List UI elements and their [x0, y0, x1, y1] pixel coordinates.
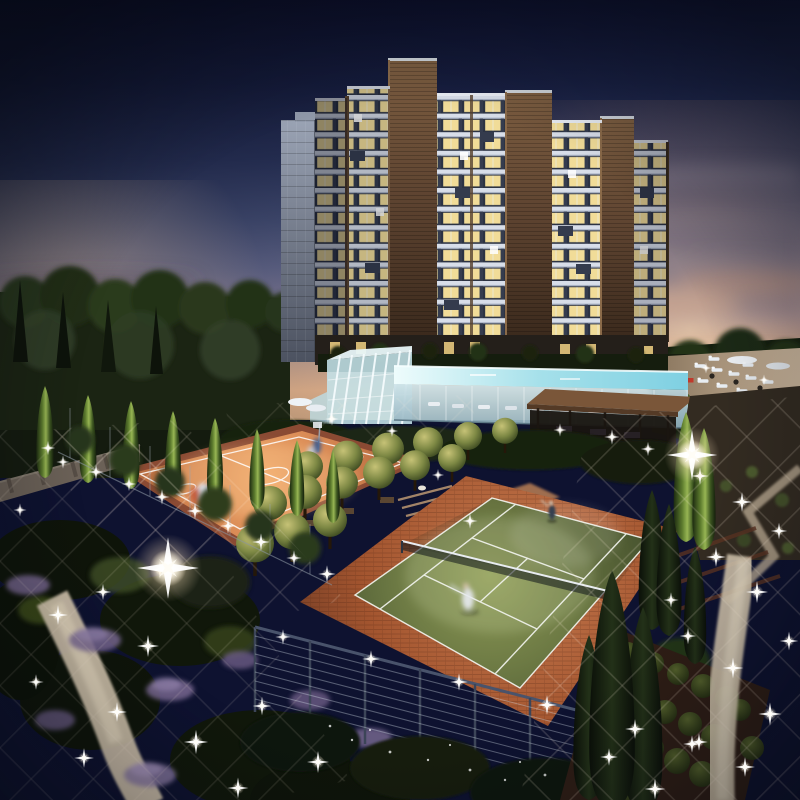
rt-instance — [326, 467, 358, 510]
basketball-court — [120, 422, 425, 546]
orchard-zone — [236, 418, 560, 576]
cyp-instance — [589, 570, 635, 800]
buildings-layer — [281, 58, 669, 365]
scene — [0, 0, 800, 800]
sparkle-instance — [220, 518, 235, 533]
cyp-instance — [249, 429, 264, 509]
window-accents — [350, 114, 654, 310]
terrace-steps — [398, 486, 464, 524]
sparkle-instance — [735, 757, 755, 777]
sparkle-instance — [137, 537, 199, 599]
sparkle-instance — [307, 751, 329, 773]
lg-instance — [712, 367, 723, 372]
rt-instance — [293, 451, 323, 492]
sky-shade-topleft — [0, 0, 800, 420]
lattice-lights — [40, 420, 345, 645]
reflected-loungers — [428, 402, 628, 414]
sparkle-instance — [95, 584, 112, 601]
sunset-glow — [0, 100, 800, 420]
lg-instance — [717, 383, 728, 388]
sparkle-instance — [604, 429, 619, 444]
rt-instance — [236, 524, 274, 576]
bottom-hedge — [240, 638, 710, 800]
infinity-pool — [394, 366, 688, 428]
tennis-net — [402, 541, 612, 604]
cyp-instance — [639, 490, 666, 630]
facade-section — [347, 88, 390, 342]
sparkle-instance — [537, 695, 557, 715]
garden-path-right — [719, 556, 742, 800]
cyp-instance — [165, 411, 181, 495]
court-glow — [405, 517, 595, 633]
service-slab-tower — [281, 112, 318, 362]
cypress-group-dark-right — [573, 490, 706, 800]
cyp-instance — [207, 418, 223, 502]
shrub-ball-rows — [615, 642, 764, 800]
cyp-instance — [326, 451, 340, 523]
sparkle-instance — [318, 565, 336, 583]
lg-instance — [698, 378, 709, 383]
court-lines — [140, 437, 403, 529]
sparkle-instance — [325, 412, 338, 425]
cyp-instance — [692, 428, 715, 550]
ground-floor — [315, 335, 668, 365]
podium-shrubs — [330, 343, 644, 363]
rt-instance — [253, 486, 287, 532]
winter-garden-greenhouse — [288, 346, 412, 424]
vignette — [0, 0, 800, 800]
sparkle-lights — [13, 363, 798, 800]
sparkle-instance — [48, 605, 68, 625]
cyp-instance — [290, 440, 304, 516]
distant-hills — [0, 294, 170, 330]
sparkle-instance — [56, 455, 69, 468]
apartment-tower — [315, 58, 669, 365]
sparkle-instance — [667, 430, 718, 481]
rt-instance — [492, 418, 518, 453]
rt-instance — [454, 422, 482, 460]
rt-instance — [400, 450, 430, 491]
apron-brick-texture — [300, 476, 678, 726]
cyp-instance — [656, 504, 681, 636]
right-forest — [647, 328, 800, 470]
lg-instance — [763, 379, 774, 384]
railing-posts — [255, 627, 695, 800]
amenity-layer — [220, 343, 800, 484]
podium-hedge — [318, 354, 698, 372]
rt-instance — [313, 503, 347, 549]
court-fence-left — [40, 408, 345, 645]
rt-instance — [363, 457, 395, 500]
pool-water — [394, 366, 688, 390]
sb-instance — [630, 689, 652, 711]
sparkle-instance — [74, 748, 94, 768]
sparkle-instance — [154, 489, 169, 504]
sparkle-instance — [41, 441, 55, 455]
hillside-path — [726, 468, 800, 602]
cyp-instance — [36, 386, 53, 478]
sparkle-instance — [432, 469, 444, 481]
sb-instance — [640, 736, 664, 760]
seated-person — [418, 486, 426, 491]
sb-instance — [715, 686, 739, 710]
sparkle-instance — [625, 719, 645, 739]
sparkle-instance — [286, 550, 301, 565]
sparkle-instance — [780, 632, 799, 651]
sparkle-instance — [362, 650, 380, 668]
sb-instance — [618, 642, 638, 662]
umbrella — [288, 398, 312, 406]
sparkle-instance — [88, 464, 103, 479]
lg-instance — [737, 388, 748, 393]
sparkle-instance — [683, 735, 701, 753]
sb-instance — [740, 736, 764, 760]
sparkle-instance — [758, 702, 781, 725]
cable-railing — [255, 627, 700, 800]
sparkle-instance — [252, 533, 270, 551]
facade-section — [552, 122, 602, 342]
sb-instance — [615, 780, 639, 800]
backboard — [313, 422, 322, 428]
cyp-instance — [80, 395, 97, 483]
sb-instance — [664, 748, 690, 774]
sparkle-instance — [137, 635, 159, 657]
sparkle-instance — [771, 523, 788, 540]
sparkle-instance — [462, 513, 477, 528]
sb-instance — [701, 724, 727, 750]
facade-section — [634, 142, 668, 342]
red-flag — [687, 378, 694, 383]
foreground-landscape — [0, 396, 800, 800]
boundary-wall-left — [0, 445, 140, 502]
loungers-group — [695, 356, 774, 393]
sb-instance — [691, 674, 715, 698]
cyp-instance — [684, 546, 706, 664]
sb-instance — [729, 699, 751, 721]
planters — [300, 497, 394, 526]
floodlight-flares — [134, 427, 720, 602]
clay-apron — [300, 476, 678, 726]
right-garden — [560, 528, 780, 800]
court-lines — [355, 498, 650, 688]
left-forest — [0, 266, 305, 478]
sparkle-instance — [641, 442, 655, 456]
rt-instance — [413, 427, 443, 468]
sparkle-instance — [450, 673, 468, 691]
sparkle-instance — [187, 503, 204, 520]
sparkle-instance — [122, 477, 136, 491]
rt-instance — [274, 513, 310, 562]
rt-instance — [331, 441, 363, 484]
umbrella — [306, 405, 326, 412]
stair-cores — [388, 58, 634, 342]
umbrella — [727, 356, 757, 364]
cyp-instance — [674, 412, 699, 542]
clouds — [0, 165, 800, 319]
pool-deck-right — [668, 348, 800, 402]
flare-stars — [137, 430, 717, 599]
sparkle-instance — [691, 467, 709, 485]
sparkle-instance — [680, 628, 697, 645]
rt-instance — [288, 475, 322, 521]
floodlight-glow — [173, 444, 357, 516]
lg-instance — [729, 371, 740, 376]
sky-gradient — [0, 0, 800, 420]
sparkle-instance — [706, 547, 726, 567]
sparkle-instance — [553, 423, 566, 436]
sparkle-instance — [732, 492, 752, 512]
basketball-players — [190, 438, 321, 510]
white-blossoms — [329, 725, 610, 790]
sparkle-instance — [253, 697, 272, 716]
sparkle-instance — [151, 561, 169, 579]
cyp-instance — [123, 401, 140, 489]
lg-instance — [709, 356, 720, 361]
sparkle-instance — [690, 733, 708, 751]
mid-hedge-band — [220, 420, 700, 484]
lavender-shrubs — [6, 575, 392, 787]
sb-instance — [678, 712, 702, 736]
sparkle-instance — [663, 592, 678, 607]
sparkle-instance — [600, 748, 618, 766]
railing-cables — [255, 636, 700, 800]
orchard-trees — [236, 418, 518, 576]
rt-instance — [372, 433, 404, 476]
sky-layer — [0, 0, 800, 420]
rendering-canvas — [0, 0, 800, 800]
hoop-post — [318, 424, 320, 452]
sparkle-instance — [275, 629, 290, 644]
ground-floor-lights — [330, 342, 653, 357]
mid-fence-lattice — [225, 395, 480, 462]
cyp-instance — [573, 635, 604, 800]
chainlink-light-grid-right — [520, 396, 800, 800]
sparkle-instance — [386, 425, 398, 437]
court-surface — [133, 431, 412, 537]
umbrella — [766, 363, 790, 370]
sparkle-instance — [759, 375, 770, 386]
sparkle-instance — [107, 702, 127, 722]
cyp-instance — [624, 607, 663, 800]
sb-instance — [642, 652, 664, 674]
sparkle-instance — [28, 674, 43, 689]
facade-section — [315, 100, 347, 342]
deck-steps — [694, 402, 722, 421]
left-garden — [0, 520, 410, 800]
sb-instance — [653, 700, 677, 724]
right-hillside — [676, 386, 800, 602]
sb-instance — [667, 663, 689, 685]
facade-section — [437, 95, 505, 342]
garden-path-left — [52, 598, 148, 800]
lg-instance — [695, 363, 706, 368]
court-apron — [120, 424, 425, 546]
sparkle-instance — [13, 503, 26, 516]
lg-instance — [746, 375, 757, 380]
fence-vines — [66, 426, 321, 564]
sparkle-instance — [701, 363, 712, 374]
chainlink-light-grid-left — [0, 430, 350, 800]
sparkle-instance — [228, 778, 249, 799]
greenhouse-ribs — [330, 350, 410, 424]
railing-top — [255, 627, 700, 742]
sparkle-instance — [723, 658, 744, 679]
pool-glass-wall — [394, 384, 688, 428]
cypress-pair-lit-right — [674, 412, 716, 550]
tennis-players — [450, 500, 557, 615]
sparkle-instance — [645, 779, 666, 800]
left-horizon-haze — [0, 180, 360, 400]
lg-instance — [743, 362, 754, 367]
sparkle-instance — [184, 730, 208, 754]
tennis-court — [300, 476, 678, 726]
rt-instance — [438, 444, 466, 482]
sparkle-instance — [746, 581, 768, 603]
grass-surface — [355, 498, 650, 688]
brick-walk — [430, 483, 560, 532]
sb-instance — [689, 761, 715, 787]
timber-pergola — [527, 389, 696, 458]
horizon-layer — [0, 266, 800, 478]
cypress-row-left — [36, 386, 340, 523]
